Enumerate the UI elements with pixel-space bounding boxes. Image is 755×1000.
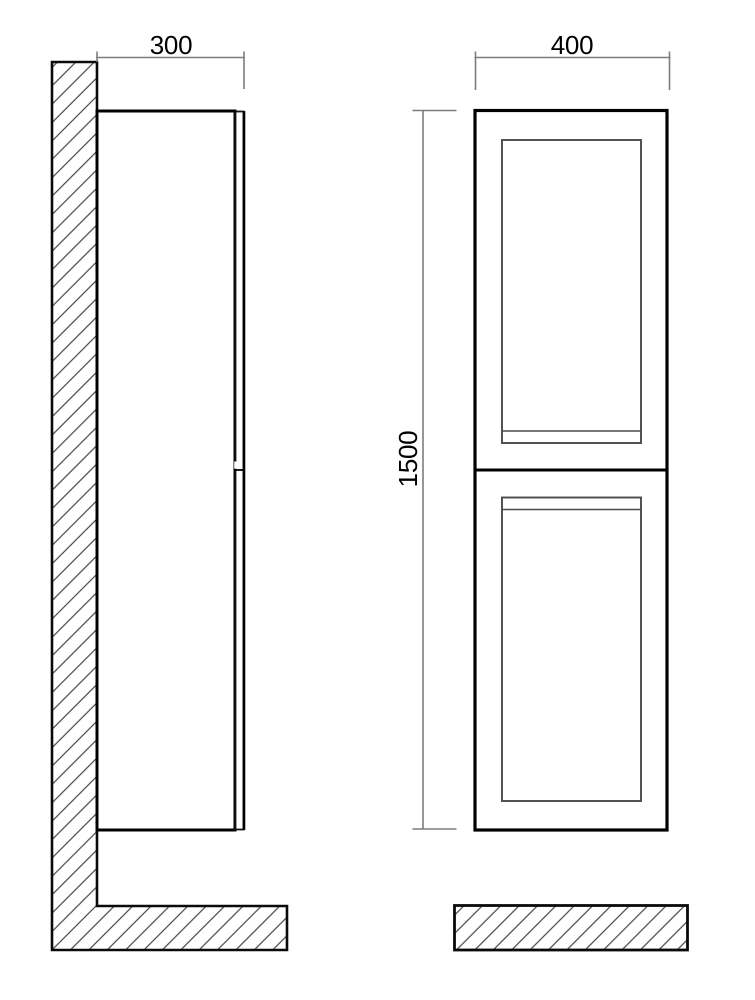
dim-1500-label: 1500 (393, 431, 423, 488)
dimension-width-400: 400 (475, 30, 671, 90)
dim-300-label: 300 (150, 30, 192, 60)
cabinet-side-body (97, 111, 235, 830)
front-view: 400 1500 (393, 30, 688, 950)
dimension-depth-300: 300 (96, 30, 245, 89)
cabinet-drawing: 300 400 (0, 0, 755, 1000)
dimension-height-1500: 1500 (393, 110, 457, 830)
dim-400-label: 400 (551, 30, 593, 60)
technical-drawing-canvas: 300 400 (0, 0, 755, 1000)
side-view: 300 (52, 30, 287, 950)
door-gap-mask (234, 462, 236, 469)
floor-hatch-section-front (455, 906, 688, 951)
